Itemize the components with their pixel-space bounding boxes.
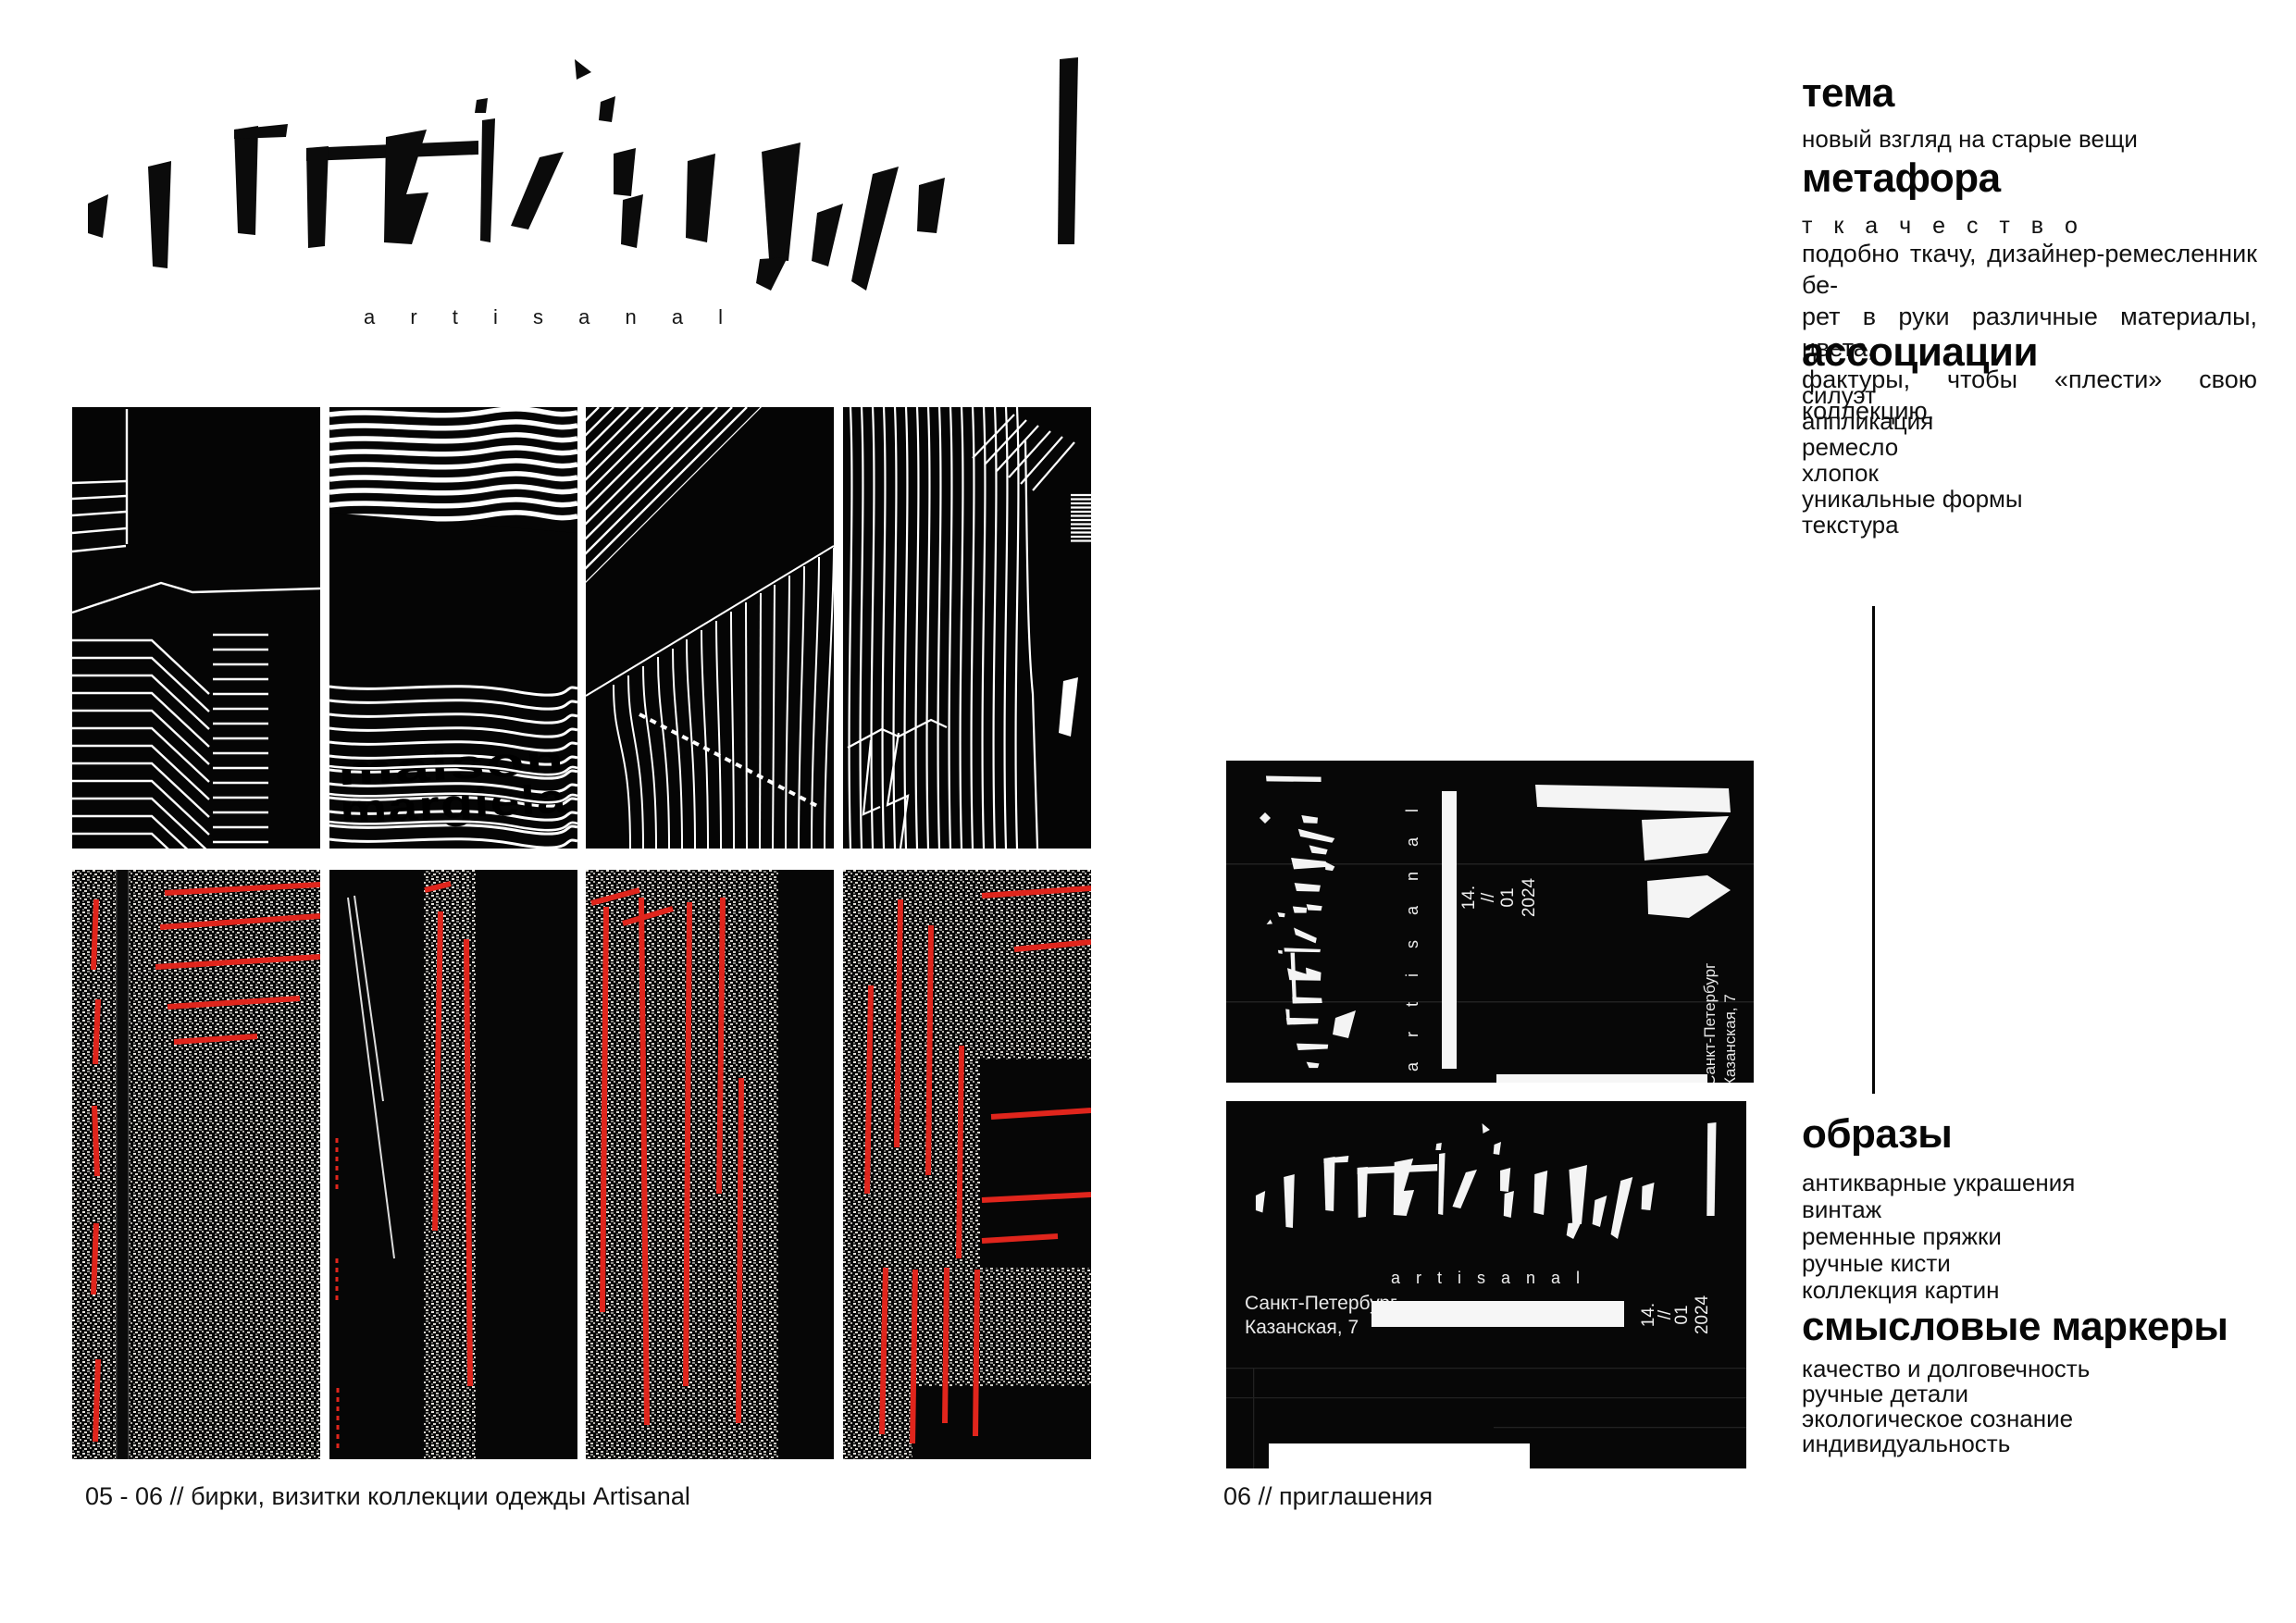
card2-brand-spaced: a r t i s a n a l — [1391, 1269, 1585, 1287]
obrazy-list: антикварные украшения винтаж ременные пр… — [1802, 1170, 2075, 1304]
list-item: качество и долговечность — [1802, 1357, 2090, 1381]
tag-panel-1 — [72, 407, 320, 849]
fabric-swatch-4 — [843, 870, 1091, 1459]
invitation-card-vertical: a r t i s a n a l 14. // 01 2024 Санкт-П… — [1226, 761, 1754, 1083]
section-heading-tema: тема — [1802, 72, 1894, 115]
card2-bottom-notch — [1269, 1443, 1530, 1468]
section-heading-markery: смысловые маркеры — [1802, 1306, 2228, 1348]
section-heading-associacii: ассоциации — [1802, 331, 2038, 374]
fabric-swatch-1 — [72, 870, 320, 1459]
list-item: винтаж — [1802, 1196, 2075, 1223]
card1-bottom-bar — [1496, 1074, 1707, 1083]
tag-panel-4 — [843, 407, 1091, 849]
card1-date-year: 2024 — [1520, 877, 1539, 917]
list-item: аппликация — [1802, 408, 2023, 434]
fabric-swatch-3 — [586, 870, 834, 1459]
portfolio-page: a r t i s a n a l maison margiela — [0, 0, 2296, 1623]
tag-panel-2: maison margiela — [329, 407, 577, 849]
associacii-list: силуэт аппликация ремесло хлопок уникаль… — [1802, 382, 2023, 538]
card1-date-day: 14. — [1459, 886, 1479, 910]
fabric-swatch-2 — [329, 870, 577, 1459]
card2-date-year: 2024 — [1693, 1295, 1712, 1334]
list-item: ременные пряжки — [1802, 1223, 2075, 1250]
metafora-lead: т к а ч е с т в о — [1802, 213, 2085, 240]
logo-subtext: a r t i s a n a l — [364, 305, 738, 329]
paragraph-line: подобно ткачу, дизайнер-ремесленник бе- — [1802, 238, 2257, 301]
markery-list: качество и долговечность ручные детали э… — [1802, 1357, 2090, 1456]
section-heading-metafora: метафора — [1802, 157, 2001, 200]
list-item: индивидуальность — [1802, 1431, 2090, 1456]
list-item: ручные детали — [1802, 1381, 2090, 1406]
section-heading-obrazy: образы — [1802, 1113, 1952, 1156]
card2-address-line2: Казанская, 7 — [1245, 1317, 1359, 1338]
tag-panel-3 — [586, 407, 834, 849]
card2-white-bar — [1371, 1301, 1624, 1327]
list-item: ручные кисти — [1802, 1250, 2075, 1277]
caption-left: 05 - 06 // бирки, визитки коллекции одеж… — [85, 1482, 690, 1511]
list-item: текстура — [1802, 512, 2023, 538]
list-item: антикварные украшения — [1802, 1170, 2075, 1196]
card1-white-bar — [1442, 791, 1457, 1069]
card2-date-month: 01 — [1672, 1305, 1692, 1324]
card1-date-slashes: // — [1479, 892, 1498, 902]
caption-right: 06 // приглашения — [1223, 1482, 1433, 1511]
list-item: коллекция картин — [1802, 1277, 2075, 1304]
tema-item: новый взгляд на старые вещи — [1802, 126, 2138, 152]
card1-address-line2: Казанская, 7 — [1721, 994, 1739, 1083]
card1-brand-spaced-vertical: a r t i s a n a l — [1403, 799, 1421, 1072]
card1-date-month: 01 — [1498, 887, 1518, 907]
list-item: силуэт — [1802, 382, 2023, 408]
divider-line — [1872, 606, 1875, 1094]
list-item: уникальные формы — [1802, 486, 2023, 512]
list-item: хлопок — [1802, 460, 2023, 486]
list-item: ремесло — [1802, 434, 2023, 460]
list-item: экологическое сознание — [1802, 1406, 2090, 1431]
artisanal-wordmark-logo — [60, 48, 1106, 303]
invitation-card-horizontal: a r t i s a n a l Санкт-Петербург Казанс… — [1226, 1101, 1746, 1468]
card1-address-line1: Санкт-Петербург — [1701, 963, 1719, 1083]
